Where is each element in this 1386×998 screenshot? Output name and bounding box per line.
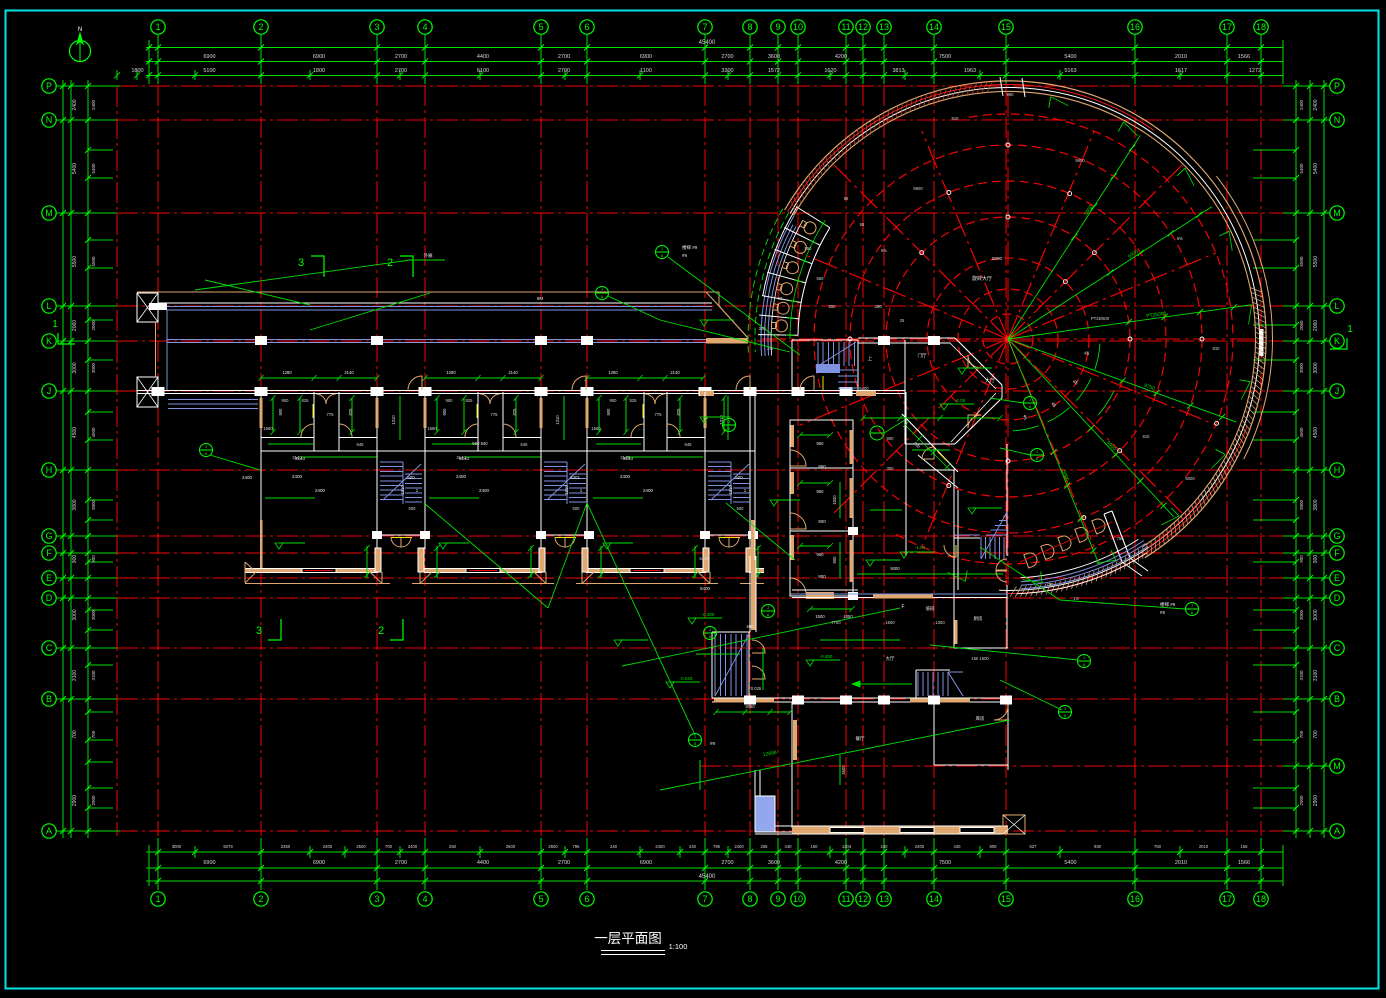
svg-text:18: 18 — [1256, 894, 1266, 904]
svg-text:5000: 5000 — [890, 566, 900, 571]
svg-text:值班: 值班 — [926, 605, 935, 612]
svg-text:240: 240 — [689, 844, 697, 849]
svg-text:2900: 2900 — [91, 795, 96, 806]
svg-text:5400: 5400 — [1064, 54, 1076, 60]
svg-text:库房: 库房 — [976, 715, 985, 722]
svg-text:J: J — [601, 287, 603, 292]
svg-text:255: 255 — [761, 844, 769, 849]
svg-text:门厅: 门厅 — [918, 352, 927, 359]
svg-text:2140: 2140 — [670, 370, 680, 375]
svg-text:A: A — [46, 826, 52, 836]
svg-text:900: 900 — [832, 556, 837, 564]
svg-text:J: J — [728, 419, 730, 424]
svg-text:3800: 3800 — [1313, 499, 1319, 510]
svg-text:2400: 2400 — [315, 488, 326, 493]
svg-text:12: 12 — [858, 894, 868, 904]
svg-text:2500: 2500 — [506, 844, 516, 849]
svg-text:2400: 2400 — [292, 474, 303, 479]
svg-text:M: M — [1333, 761, 1341, 771]
svg-text:2: 2 — [258, 894, 263, 904]
svg-text:13: 13 — [879, 22, 889, 32]
svg-text:1310: 1310 — [391, 415, 396, 425]
svg-text:2400: 2400 — [456, 474, 467, 479]
svg-text:N: N — [1334, 115, 1341, 125]
svg-text:900: 900 — [606, 408, 611, 416]
svg-text:1500: 1500 — [815, 614, 825, 619]
svg-text:1500: 1500 — [885, 620, 895, 625]
svg-text:5500: 5500 — [1299, 256, 1304, 267]
svg-text:2700: 2700 — [558, 68, 570, 74]
svg-text:2010: 2010 — [1175, 54, 1187, 60]
svg-text:809: 809 — [990, 844, 998, 849]
svg-text:2050: 2050 — [745, 704, 755, 709]
svg-text:1572: 1572 — [768, 68, 780, 74]
svg-text:1500: 1500 — [832, 495, 837, 505]
svg-text:-0.020: -0.020 — [680, 676, 693, 681]
svg-text:3800: 3800 — [1299, 499, 1304, 510]
svg-text:825: 825 — [466, 398, 474, 403]
svg-text:G: G — [45, 531, 52, 541]
svg-text:500: 500 — [407, 475, 415, 480]
svg-text:-0.450: -0.450 — [820, 654, 833, 659]
svg-text:645: 645 — [685, 442, 693, 447]
svg-text:4200: 4200 — [835, 54, 847, 60]
svg-text:825: 825 — [512, 408, 517, 416]
svg-text:910: 910 — [1143, 434, 1151, 439]
svg-text:1310: 1310 — [555, 415, 560, 425]
svg-text:3140: 3140 — [456, 455, 466, 460]
svg-text:3600: 3600 — [768, 54, 780, 60]
svg-text:14: 14 — [929, 22, 939, 32]
svg-text:H: H — [1334, 465, 1341, 475]
svg-text:900: 900 — [610, 398, 618, 403]
svg-text:F: F — [1334, 548, 1340, 558]
svg-text:2010: 2010 — [1199, 844, 1209, 849]
svg-text:3800: 3800 — [72, 499, 78, 510]
svg-text:825: 825 — [348, 408, 353, 416]
svg-text:2401: 2401 — [570, 475, 581, 480]
svg-text:2400: 2400 — [479, 488, 490, 493]
svg-text:L: L — [1334, 301, 1339, 311]
svg-text:900: 900 — [446, 398, 454, 403]
svg-text:7700: 7700 — [831, 620, 841, 625]
svg-text:5400: 5400 — [91, 163, 96, 174]
svg-text:825: 825 — [302, 398, 310, 403]
svg-text:G: G — [1333, 531, 1340, 541]
svg-text:400: 400 — [746, 624, 754, 629]
svg-text:6900: 6900 — [203, 54, 215, 60]
svg-text:2700: 2700 — [395, 860, 407, 866]
svg-text:L: L — [46, 301, 51, 311]
svg-text:B: B — [46, 694, 52, 704]
svg-text:627: 627 — [1030, 844, 1038, 849]
svg-text:3100: 3100 — [72, 670, 78, 681]
svg-text:700: 700 — [1313, 730, 1319, 739]
svg-text:4500: 4500 — [1313, 427, 1319, 438]
svg-text:795: 795 — [573, 844, 581, 849]
svg-text:775: 775 — [655, 412, 663, 417]
svg-text:1800: 1800 — [313, 68, 325, 74]
svg-text:3000: 3000 — [1299, 609, 1304, 620]
svg-text:5500: 5500 — [72, 256, 78, 267]
svg-text:-0.05: -0.05 — [955, 398, 966, 403]
svg-text:500: 500 — [409, 506, 417, 511]
svg-text:500: 500 — [735, 475, 743, 480]
svg-text:3000: 3000 — [1299, 362, 1304, 373]
svg-text:5163: 5163 — [1064, 68, 1076, 74]
svg-text:2400: 2400 — [91, 99, 96, 110]
svg-text:3000: 3000 — [91, 362, 96, 373]
svg-text:1280: 1280 — [282, 370, 292, 375]
svg-text:550: 550 — [817, 276, 825, 281]
svg-text:900: 900 — [1313, 555, 1319, 564]
svg-text:550: 550 — [805, 246, 813, 251]
svg-text:5900: 5900 — [913, 186, 923, 191]
svg-text:645: 645 — [357, 442, 365, 447]
svg-text:7: 7 — [702, 22, 707, 32]
svg-text:5%: 5% — [881, 248, 887, 253]
svg-text:J: J — [205, 444, 207, 449]
svg-text:A: A — [1334, 826, 1340, 836]
svg-text:PT25/500: PT25/500 — [1091, 316, 1110, 321]
svg-text:2900: 2900 — [1299, 795, 1304, 806]
svg-text:-1.04: -1.04 — [915, 545, 926, 550]
svg-text:2600: 2600 — [548, 844, 558, 849]
svg-text:J: J — [1191, 603, 1193, 608]
svg-text:910: 910 — [1213, 346, 1221, 351]
svg-text:1560: 1560 — [427, 426, 437, 431]
svg-text:900: 900 — [887, 436, 895, 441]
svg-text:J: J — [1335, 386, 1340, 396]
svg-text:645: 645 — [521, 442, 529, 447]
svg-text:440: 440 — [785, 844, 793, 849]
svg-text:2400: 2400 — [915, 844, 925, 849]
svg-text:K: K — [1334, 336, 1340, 346]
svg-text:#9: #9 — [682, 253, 688, 258]
svg-text:1: 1 — [155, 22, 160, 32]
svg-text:N: N — [78, 27, 82, 33]
svg-text:8: 8 — [747, 894, 752, 904]
svg-text:825: 825 — [676, 408, 681, 416]
svg-text:930: 930 — [1094, 844, 1102, 849]
svg-text:1310: 1310 — [564, 485, 569, 495]
svg-text:98: 98 — [844, 196, 849, 201]
svg-text:3300: 3300 — [721, 68, 733, 74]
svg-text:5400: 5400 — [1064, 860, 1076, 866]
svg-text:6100: 6100 — [477, 68, 489, 74]
svg-text:2400: 2400 — [1299, 99, 1304, 110]
svg-text:900: 900 — [818, 574, 826, 579]
svg-text:5500: 5500 — [1313, 256, 1319, 267]
svg-text:3: 3 — [256, 625, 262, 637]
svg-text:500: 500 — [573, 506, 581, 511]
svg-text:825: 825 — [630, 398, 638, 403]
svg-text:J: J — [1036, 449, 1038, 454]
svg-text:5079: 5079 — [223, 844, 233, 849]
svg-text:7: 7 — [702, 894, 707, 904]
svg-text:5500: 5500 — [91, 256, 96, 267]
svg-text:900: 900 — [1299, 555, 1304, 563]
svg-text:10: 10 — [793, 22, 803, 32]
svg-text:2700: 2700 — [721, 860, 733, 866]
svg-text:910: 910 — [952, 116, 960, 121]
svg-text:45400: 45400 — [699, 40, 716, 46]
svg-text:6900: 6900 — [640, 860, 652, 866]
svg-text:16: 16 — [1130, 894, 1140, 904]
svg-text:2: 2 — [378, 625, 384, 637]
svg-text:2900: 2900 — [1313, 795, 1319, 806]
svg-text:6: 6 — [584, 894, 589, 904]
svg-text:2400: 2400 — [655, 844, 665, 849]
svg-text:C: C — [46, 643, 53, 653]
svg-text:700: 700 — [91, 730, 96, 738]
svg-text:M: M — [1333, 208, 1341, 218]
svg-text:2500: 2500 — [356, 844, 366, 849]
svg-text:3800: 3800 — [91, 499, 96, 510]
svg-text:9: 9 — [775, 894, 780, 904]
svg-text:1%: 1% — [767, 346, 773, 351]
svg-text:25: 25 — [900, 318, 905, 323]
svg-text:950: 950 — [817, 552, 825, 557]
svg-text:9M: 9M — [537, 296, 544, 301]
svg-text:11: 11 — [841, 894, 850, 904]
svg-text:11: 11 — [841, 22, 850, 32]
svg-text:5000: 5000 — [992, 256, 1003, 261]
svg-text:上: 上 — [868, 355, 873, 361]
svg-text:P: P — [46, 81, 52, 91]
svg-text:300: 300 — [759, 326, 767, 331]
svg-text:5: 5 — [538, 894, 543, 904]
svg-text:1560: 1560 — [591, 426, 601, 431]
svg-text:750: 750 — [1154, 844, 1162, 849]
svg-text:J: J — [1064, 706, 1066, 711]
svg-text:960: 960 — [1007, 92, 1015, 97]
svg-text:350: 350 — [887, 466, 895, 471]
svg-text:1100: 1100 — [640, 68, 652, 74]
svg-text:3000: 3000 — [172, 844, 182, 849]
svg-text:1%: 1% — [1073, 596, 1079, 601]
svg-text:3140: 3140 — [292, 455, 302, 460]
svg-text:4200: 4200 — [835, 860, 847, 866]
svg-text:1: 1 — [155, 894, 160, 904]
svg-text:F: F — [46, 548, 52, 558]
svg-text:8: 8 — [747, 22, 752, 32]
svg-text:2400: 2400 — [242, 475, 253, 480]
svg-text:J: J — [661, 246, 663, 251]
svg-text:4500: 4500 — [1299, 427, 1304, 438]
svg-text:2400: 2400 — [620, 474, 631, 479]
svg-text:1:100: 1:100 — [669, 942, 688, 951]
svg-text:2010: 2010 — [1175, 860, 1187, 866]
svg-text:6900: 6900 — [640, 54, 652, 60]
svg-text:5400: 5400 — [72, 163, 78, 174]
svg-text:3: 3 — [374, 894, 379, 904]
svg-text:1620: 1620 — [824, 68, 836, 74]
svg-text:-0.300: -0.300 — [702, 612, 715, 617]
svg-text:2400: 2400 — [323, 844, 333, 849]
svg-text:外廊: 外廊 — [424, 252, 433, 259]
svg-text:7500: 7500 — [939, 860, 951, 866]
svg-text:0.025: 0.025 — [751, 686, 762, 691]
svg-text:2700: 2700 — [395, 54, 407, 60]
svg-text:900: 900 — [818, 464, 826, 469]
svg-text:15: 15 — [1001, 22, 1011, 32]
svg-text:1566: 1566 — [1238, 860, 1250, 866]
svg-text:240: 240 — [610, 844, 618, 849]
svg-text:J: J — [767, 605, 769, 610]
svg-text:500: 500 — [737, 506, 745, 511]
svg-text:440: 440 — [954, 844, 962, 849]
svg-text:厨房: 厨房 — [974, 615, 983, 622]
svg-text:4400: 4400 — [477, 54, 489, 60]
svg-text:一层平面图: 一层平面图 — [594, 931, 662, 946]
svg-text:775: 775 — [327, 412, 335, 417]
svg-text:J: J — [1029, 397, 1031, 402]
svg-text:餐厅: 餐厅 — [856, 735, 865, 742]
svg-text:550: 550 — [829, 304, 837, 309]
svg-text:2060: 2060 — [72, 320, 78, 331]
svg-text:90: 90 — [778, 296, 783, 301]
svg-text:3000: 3000 — [91, 609, 96, 620]
svg-text:H: H — [46, 465, 53, 475]
svg-text:3600: 3600 — [768, 860, 780, 866]
svg-text:2: 2 — [258, 22, 263, 32]
svg-text:900: 900 — [91, 555, 96, 563]
svg-text:12: 12 — [858, 22, 868, 32]
svg-text:5400: 5400 — [700, 586, 711, 591]
svg-text:5100: 5100 — [203, 68, 215, 74]
svg-text:#9: #9 — [1160, 610, 1166, 615]
svg-text:J: J — [47, 386, 52, 396]
svg-text:5400: 5400 — [699, 556, 709, 561]
svg-text:15: 15 — [1001, 894, 1011, 904]
svg-text:楼梯 #9: 楼梯 #9 — [682, 244, 698, 251]
svg-text:#9: #9 — [710, 741, 716, 746]
svg-text:6900: 6900 — [203, 860, 215, 866]
svg-text:K: K — [46, 336, 52, 346]
svg-text:2140: 2140 — [508, 370, 518, 375]
svg-text:45400: 45400 — [699, 874, 716, 880]
svg-text:C: C — [1334, 643, 1341, 653]
svg-text:1310: 1310 — [400, 485, 405, 495]
svg-text:大厅: 大厅 — [985, 377, 995, 384]
svg-text:2400: 2400 — [643, 488, 654, 493]
svg-text:4500: 4500 — [841, 765, 846, 775]
svg-text:156: 156 — [1241, 844, 1249, 849]
svg-text:J: J — [709, 627, 711, 632]
svg-text:1280: 1280 — [608, 370, 618, 375]
svg-text:900: 900 — [818, 519, 826, 524]
svg-text:N: N — [46, 115, 53, 125]
svg-text:250: 250 — [449, 844, 457, 849]
svg-text:2700: 2700 — [721, 54, 733, 60]
svg-text:4400: 4400 — [477, 860, 489, 866]
svg-text:3100: 3100 — [1313, 670, 1319, 681]
svg-text:3140: 3140 — [620, 455, 630, 460]
svg-text:7500: 7500 — [939, 54, 951, 60]
svg-text:13: 13 — [879, 894, 889, 904]
svg-text:18: 18 — [1256, 22, 1266, 32]
svg-text:E: E — [1334, 573, 1340, 583]
svg-text:900: 900 — [72, 555, 78, 564]
svg-text:795: 795 — [713, 844, 721, 849]
svg-text:4500: 4500 — [72, 427, 78, 438]
svg-text:700: 700 — [1299, 730, 1304, 738]
svg-text:2400: 2400 — [408, 844, 418, 849]
svg-text:950: 950 — [817, 441, 825, 446]
svg-text:900: 900 — [442, 408, 447, 416]
svg-text:150 1500: 150 1500 — [971, 656, 989, 661]
svg-text:3100: 3100 — [1299, 670, 1304, 681]
svg-text:3000: 3000 — [1313, 609, 1319, 620]
svg-text:2060: 2060 — [1313, 320, 1319, 331]
svg-text:6900: 6900 — [313, 54, 325, 60]
svg-text:4: 4 — [422, 894, 427, 904]
svg-text:750: 750 — [1117, 536, 1125, 541]
svg-text:F: F — [901, 604, 904, 610]
svg-text:3000: 3000 — [72, 609, 78, 620]
svg-text:4500: 4500 — [91, 427, 96, 438]
svg-text:9: 9 — [775, 22, 780, 32]
svg-text:1617: 1617 — [1175, 68, 1187, 74]
svg-text:5%: 5% — [1177, 236, 1183, 241]
svg-text:旋转大厅: 旋转大厅 — [972, 275, 992, 282]
svg-text:3: 3 — [298, 257, 304, 269]
svg-text:2700: 2700 — [558, 860, 570, 866]
svg-text:1280: 1280 — [446, 370, 456, 375]
svg-text:2060: 2060 — [1299, 320, 1304, 331]
svg-text:1800: 1800 — [131, 68, 143, 74]
svg-text:5000: 5000 — [1185, 476, 1195, 481]
svg-text:E: E — [46, 573, 52, 583]
svg-text:10: 10 — [793, 894, 803, 904]
svg-text:240: 240 — [881, 844, 889, 849]
svg-text:1566: 1566 — [1238, 54, 1250, 60]
svg-text:1560: 1560 — [263, 426, 273, 431]
svg-text:2900: 2900 — [72, 795, 78, 806]
svg-text:5400: 5400 — [1299, 163, 1304, 174]
svg-text:17: 17 — [1222, 894, 1232, 904]
svg-text:5: 5 — [538, 22, 543, 32]
svg-text:700: 700 — [385, 844, 393, 849]
svg-text:58: 58 — [860, 222, 865, 227]
svg-text:16: 16 — [1130, 22, 1140, 32]
svg-text:1304: 1304 — [842, 844, 852, 849]
svg-text:2700: 2700 — [395, 68, 407, 74]
svg-text:5400: 5400 — [1313, 163, 1319, 174]
svg-text:900: 900 — [278, 408, 283, 416]
svg-text:17: 17 — [1222, 22, 1232, 32]
svg-text:1: 1 — [1347, 324, 1353, 335]
svg-text:6: 6 — [584, 22, 589, 32]
svg-text:160: 160 — [811, 844, 819, 849]
svg-text:3100: 3100 — [91, 670, 96, 681]
svg-text:1310: 1310 — [728, 485, 733, 495]
svg-text:4: 4 — [422, 22, 427, 32]
svg-text:D: D — [1334, 593, 1341, 603]
svg-text:3000: 3000 — [1313, 362, 1319, 373]
svg-text:2400: 2400 — [734, 844, 744, 849]
svg-text:B: B — [1334, 694, 1340, 704]
svg-text:560 640: 560 640 — [472, 441, 488, 446]
svg-text:1272: 1272 — [1249, 68, 1261, 74]
svg-text:1: 1 — [52, 319, 58, 330]
svg-text:2350: 2350 — [281, 844, 291, 849]
svg-text:3000: 3000 — [72, 362, 78, 373]
svg-text:14: 14 — [929, 894, 939, 904]
svg-text:900: 900 — [282, 398, 290, 403]
svg-text:D: D — [46, 593, 53, 603]
